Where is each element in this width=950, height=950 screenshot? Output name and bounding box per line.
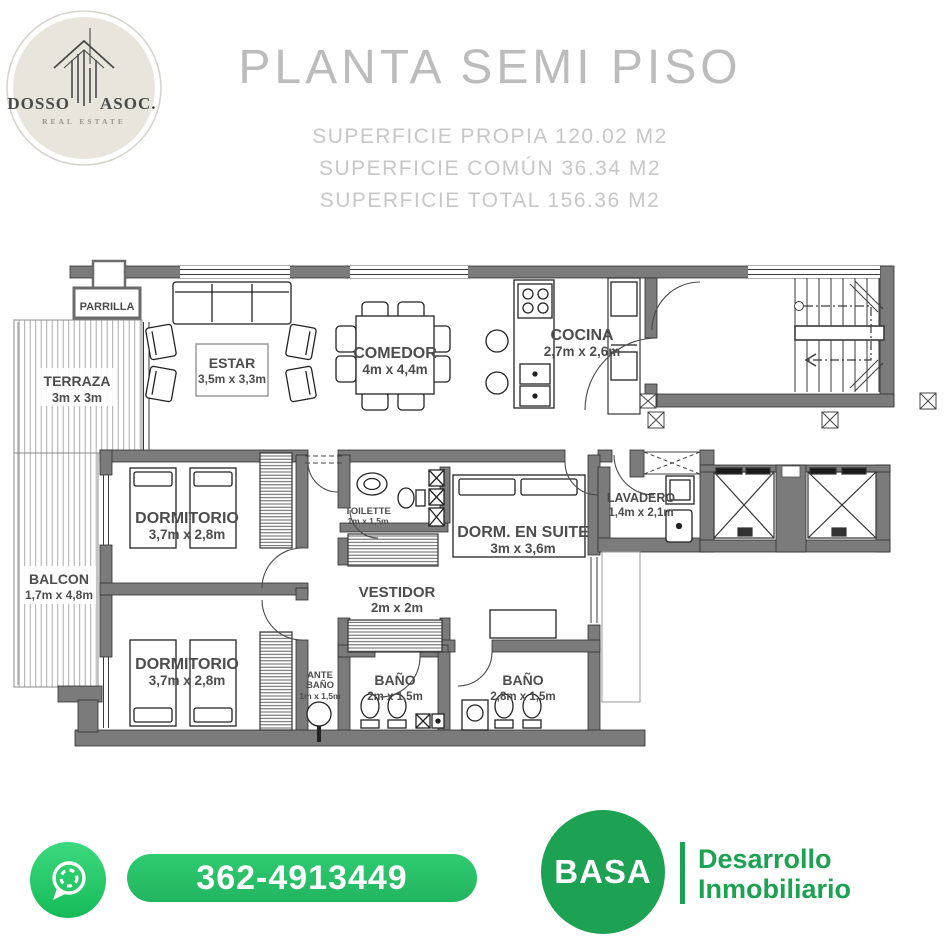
page-title: PLANTA SEMI PISO [110,40,870,95]
room-dims-balcon: 1,7m x 4,8m [25,588,93,602]
room-label-antebano-2: BAÑO [306,680,334,691]
room-label-vestidor: VESTIDOR [359,584,436,601]
whatsapp-button[interactable] [30,842,106,918]
room-label-bano1: BAÑO [374,671,415,688]
room-dims-bano2: 2,8m x 1,5m [490,691,555,703]
stairwell [795,278,885,392]
room-label-dormitorio2: DORMITORIO [135,656,239,673]
room-label-cocina: COCINA [550,327,614,344]
sofa [173,282,291,324]
room-dims-lavadero: 1,4m x 2,1m [608,507,673,519]
room-dims-bano1: 2m x 1,5m [367,691,423,703]
floorplan: PARRILLA TERRAZA 3m x 3m ESTAR 3,5m x 3,… [0,250,950,755]
room-label-suite: DORM. EN SUITE [457,524,589,541]
room-label-lavadero: LAVADERO [607,491,676,505]
flyer-page: DOSSO ASOC. REAL ESTATE PLANTA SEMI PISO… [0,0,950,950]
room-dims-cocina: 2,7m x 2,6m [544,344,621,359]
room-label-dormitorio1: DORMITORIO [135,510,239,527]
surface-comun: SUPERFICIE COMÚN 36.34 M2 [110,157,870,181]
phone-pill[interactable]: 362-4913449 [127,854,477,902]
room-dims-antebano: 1m x 1,5m [299,691,341,701]
room-dims-toilette: 1m x 1,5m [347,516,389,526]
room-dims-dormitorio2: 3,7m x 2,8m [149,673,226,688]
room-dims-comedor: 4m x 4,4m [362,362,427,377]
room-dims-vestidor: 2m x 2m [371,600,423,615]
room-label-terraza: TERRAZA [44,373,111,389]
room-dims-terraza: 3m x 3m [52,391,102,405]
bed-suite [453,475,585,638]
room-label-comedor: COMEDOR [353,345,437,362]
surface-total: SUPERFICIE TOTAL 156.36 M2 [110,189,870,213]
whatsapp-circle [30,842,106,918]
room-dims-estar: 3,5m x 3,3m [198,372,266,386]
developer-logo: BASA [541,810,665,934]
developer-name: BASA [554,853,652,891]
room-label-balcon: BALCON [29,571,89,587]
developer-tagline-line2: Inmobiliario [698,874,851,904]
developer-tagline-line1: Desarrollo [698,844,851,874]
developer-tagline: Desarrollo Inmobiliario [698,844,851,904]
header: PLANTA SEMI PISO SUPERFICIE PROPIA 120.0… [110,40,870,221]
room-label-parrilla: PARRILLA [80,301,135,313]
footer-divider [680,842,685,904]
logo-name-left: DOSSO [7,94,70,113]
room-dims-dormitorio1: 3,7m x 2,8m [149,527,226,542]
room-dims-suite: 3m x 3,6m [490,541,555,556]
surface-summary: SUPERFICIE PROPIA 120.02 M2 SUPERFICIE C… [110,125,870,213]
surface-propia: SUPERFICIE PROPIA 120.02 M2 [110,125,870,149]
room-label-estar: ESTAR [209,355,255,371]
room-label-bano2: BAÑO [502,671,543,688]
